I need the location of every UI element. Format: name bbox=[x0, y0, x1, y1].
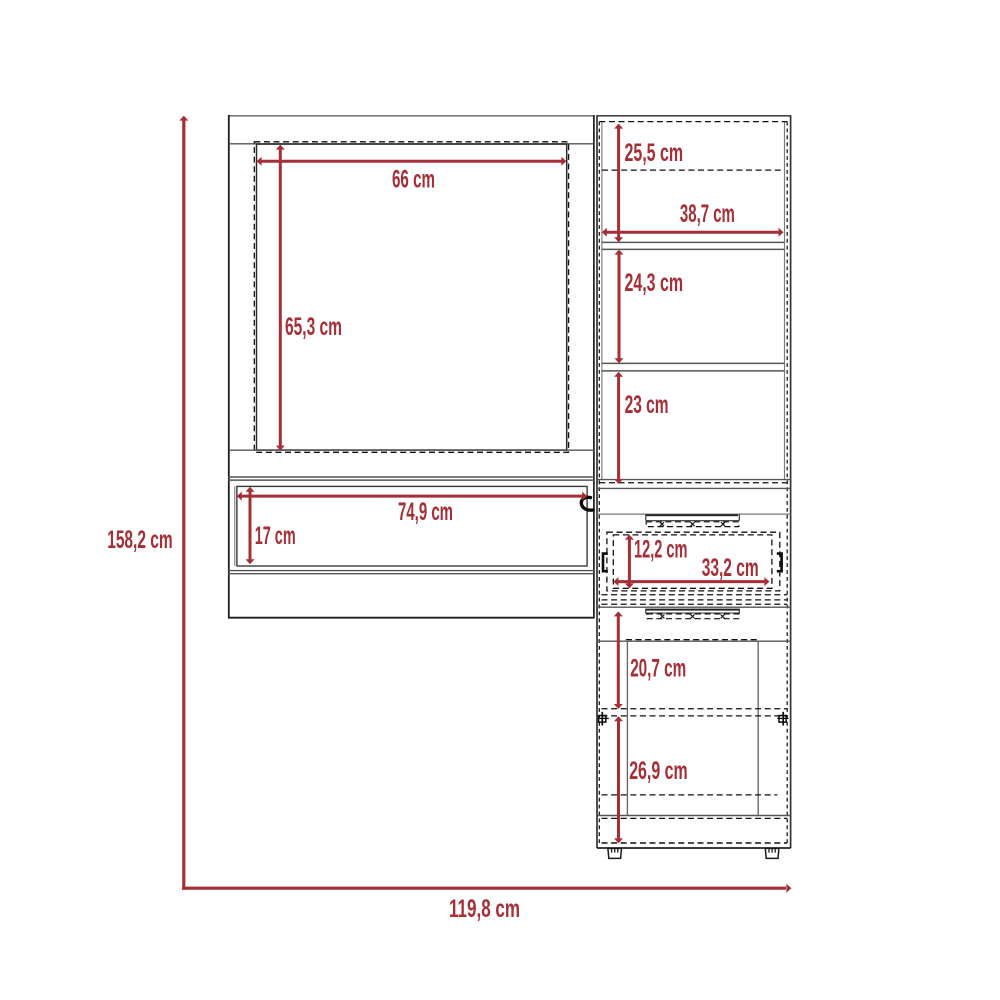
svg-text:25,5 cm: 25,5 cm bbox=[625, 139, 684, 167]
svg-text:65,3 cm: 65,3 cm bbox=[285, 313, 342, 341]
svg-text:74,9 cm: 74,9 cm bbox=[398, 498, 453, 526]
svg-text:33,2 cm: 33,2 cm bbox=[702, 554, 759, 582]
svg-text:20,7 cm: 20,7 cm bbox=[630, 655, 686, 683]
svg-text:23 cm: 23 cm bbox=[625, 391, 669, 419]
svg-text:12,2 cm: 12,2 cm bbox=[634, 536, 688, 564]
svg-text:17 cm: 17 cm bbox=[255, 522, 296, 550]
svg-text:38,7 cm: 38,7 cm bbox=[680, 200, 735, 228]
svg-text:66 cm: 66 cm bbox=[392, 166, 435, 194]
svg-text:26,9 cm: 26,9 cm bbox=[629, 757, 688, 785]
svg-text:119,8 cm: 119,8 cm bbox=[449, 895, 520, 923]
svg-text:158,2 cm: 158,2 cm bbox=[107, 526, 173, 554]
svg-text:24,3 cm: 24,3 cm bbox=[625, 269, 684, 297]
